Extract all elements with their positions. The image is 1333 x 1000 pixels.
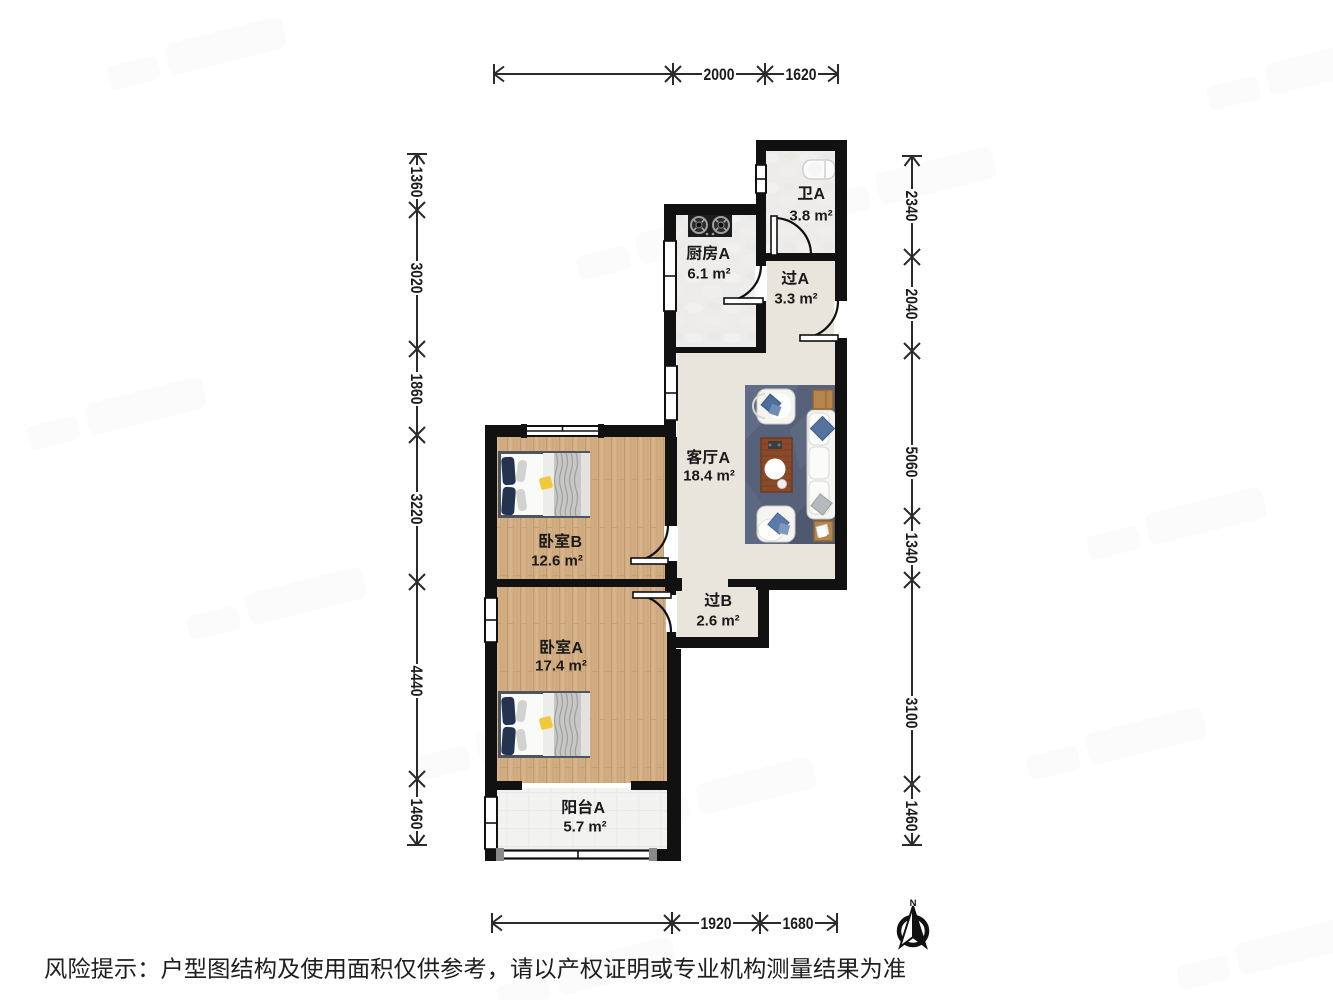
svg-text:1360: 1360 (407, 167, 426, 198)
svg-text:1460: 1460 (407, 799, 426, 830)
svg-text:4440: 4440 (407, 666, 426, 697)
svg-text:A: A (814, 186, 826, 203)
svg-text:1860: 1860 (407, 374, 426, 405)
svg-text:5060: 5060 (902, 447, 921, 478)
svg-text:1460: 1460 (902, 801, 921, 832)
svg-text:A: A (798, 271, 810, 288)
svg-text:B: B (571, 534, 583, 551)
svg-text:3020: 3020 (407, 263, 426, 294)
svg-text:3.3 m²: 3.3 m² (774, 290, 817, 307)
svg-text:17.4 m²: 17.4 m² (535, 657, 587, 674)
svg-text:3220: 3220 (407, 494, 426, 525)
svg-text:1340: 1340 (902, 533, 921, 564)
svg-text:18.4 m²: 18.4 m² (683, 467, 735, 484)
svg-text:2340: 2340 (902, 191, 921, 222)
svg-text:A: A (572, 640, 584, 657)
svg-text:2.6 m²: 2.6 m² (696, 612, 739, 629)
svg-text:1620: 1620 (786, 65, 817, 84)
svg-text:A: A (719, 450, 731, 467)
svg-text:3100: 3100 (902, 698, 921, 729)
svg-text:1680: 1680 (783, 914, 814, 933)
svg-text:A: A (594, 800, 606, 817)
svg-text:3.8 m²: 3.8 m² (789, 207, 832, 224)
svg-text:5.7 m²: 5.7 m² (563, 818, 606, 835)
svg-text:1920: 1920 (701, 914, 732, 933)
svg-text:2000: 2000 (704, 65, 735, 84)
svg-text:12.6 m²: 12.6 m² (531, 552, 583, 569)
svg-text:2040: 2040 (902, 289, 921, 320)
svg-text:6.1 m²: 6.1 m² (687, 265, 730, 282)
svg-text:A: A (719, 246, 731, 263)
svg-text:B: B (721, 593, 733, 610)
